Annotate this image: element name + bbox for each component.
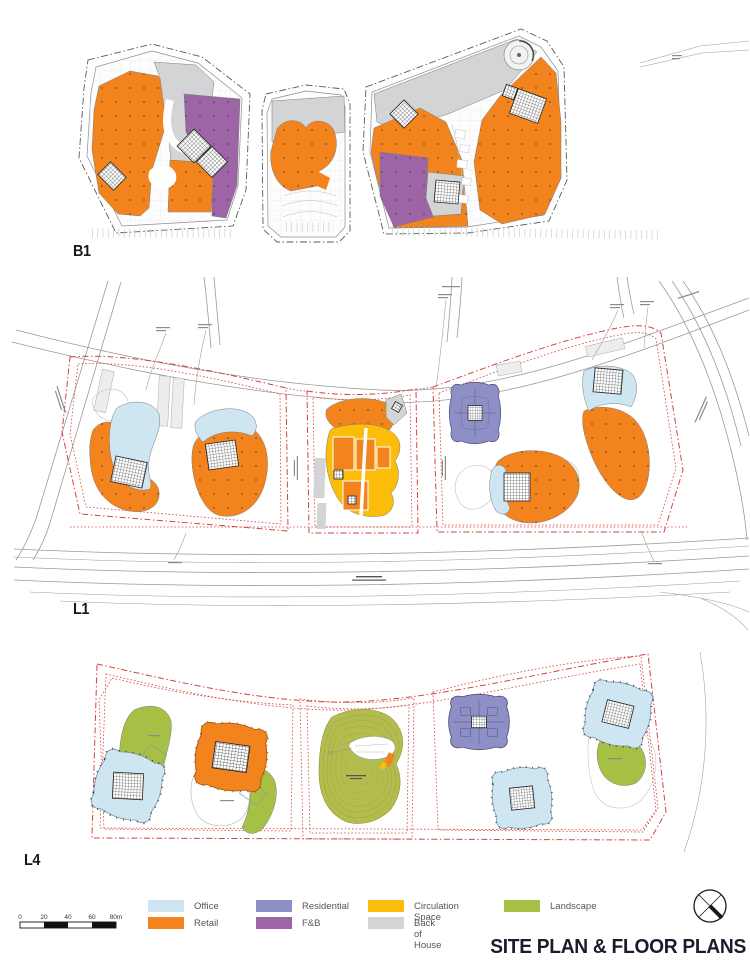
scale-tick: 40 (64, 914, 72, 921)
legend-label-fnb: F&B (302, 918, 320, 929)
b1-block-east (363, 29, 749, 235)
sheet-title: SITE PLAN & FLOOR PLANS (481, 936, 746, 959)
l4-office-tower-sw (489, 764, 556, 832)
b1-block-center (262, 85, 350, 242)
level-label-l1: L1 (73, 601, 89, 619)
l1-fan-building (490, 451, 580, 523)
legend-swatch-retail (148, 917, 184, 929)
north-arrow-icon (694, 890, 726, 922)
level-label-l4: L4 (24, 852, 40, 870)
l1-building-b (192, 409, 268, 517)
l4-office-tower-ne (578, 675, 657, 753)
level-label-b1: B1 (73, 243, 91, 261)
legend-label-landscape: Landscape (550, 901, 596, 912)
legend-label-residential: Residential (302, 901, 349, 912)
l1-central-retail-circulation (313, 394, 407, 529)
scale-tick: 60 (88, 914, 96, 921)
site-plan-sheet: 0 20 40 60 80m B1 L1 L4 Office Retail Re… (0, 0, 750, 970)
b1-block-west (79, 44, 250, 233)
legend-label-retail: Retail (194, 918, 218, 929)
legend-swatch-fnb (256, 917, 292, 929)
l1-building-a (90, 402, 160, 512)
l4-plan (86, 652, 706, 852)
scale-tick: 0 (18, 914, 22, 921)
legend-label-office: Office (194, 901, 219, 912)
scale-bar: 0 20 40 60 80m (18, 914, 122, 928)
plans-drawing: 0 20 40 60 80m (0, 0, 750, 970)
l4-block-west (86, 706, 277, 833)
l4-block-east (449, 675, 658, 832)
scale-tick: 80m (110, 914, 123, 921)
b1-plan (79, 29, 749, 242)
l1-residential-tower (449, 382, 500, 443)
l4-residential-tower (449, 694, 510, 749)
legend-label-boh: Back of House (414, 918, 441, 951)
scale-tick: 20 (40, 914, 48, 921)
l1-east-building (583, 366, 650, 500)
legend-swatch-boh (368, 917, 404, 929)
l4-landscape-mound (319, 709, 403, 823)
l1-plan (12, 277, 749, 630)
legend-swatch-office (148, 900, 184, 912)
legend-swatch-landscape (504, 900, 540, 912)
l4-retail-tower (190, 718, 272, 796)
legend-swatch-residential (256, 900, 292, 912)
legend-swatch-circulation (368, 900, 404, 912)
